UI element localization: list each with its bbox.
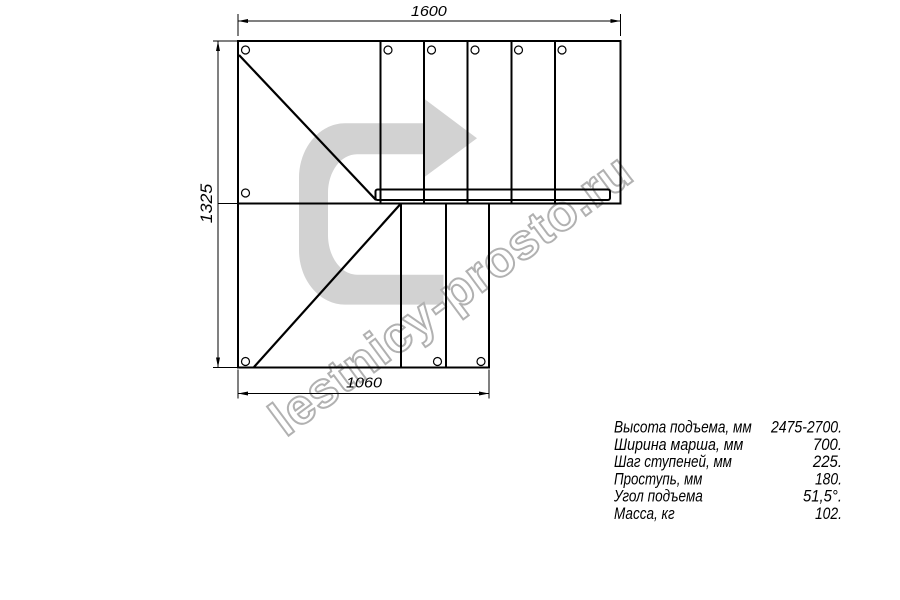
svg-text:Высота подъема, мм: Высота подъема, мм	[614, 418, 752, 437]
svg-text:Шаг ступеней, мм: Шаг ступеней, мм	[614, 453, 732, 472]
svg-text:700.: 700.	[813, 436, 842, 454]
svg-text:102.: 102.	[815, 505, 842, 524]
svg-text:Угол подъема: Угол подъема	[613, 487, 703, 506]
svg-text:51,5°.: 51,5°.	[803, 488, 842, 506]
svg-text:Масса, кг: Масса, кг	[614, 505, 675, 524]
svg-text:Ширина марша, мм: Ширина марша, мм	[614, 436, 744, 454]
svg-text:1600: 1600	[411, 3, 447, 19]
svg-text:225.: 225.	[812, 453, 842, 471]
svg-text:2475-2700.: 2475-2700.	[770, 418, 842, 437]
svg-text:Проступь, мм: Проступь, мм	[614, 470, 703, 489]
svg-text:1325: 1325	[197, 183, 216, 223]
svg-text:1060: 1060	[346, 375, 382, 391]
svg-text:180.: 180.	[815, 470, 842, 489]
